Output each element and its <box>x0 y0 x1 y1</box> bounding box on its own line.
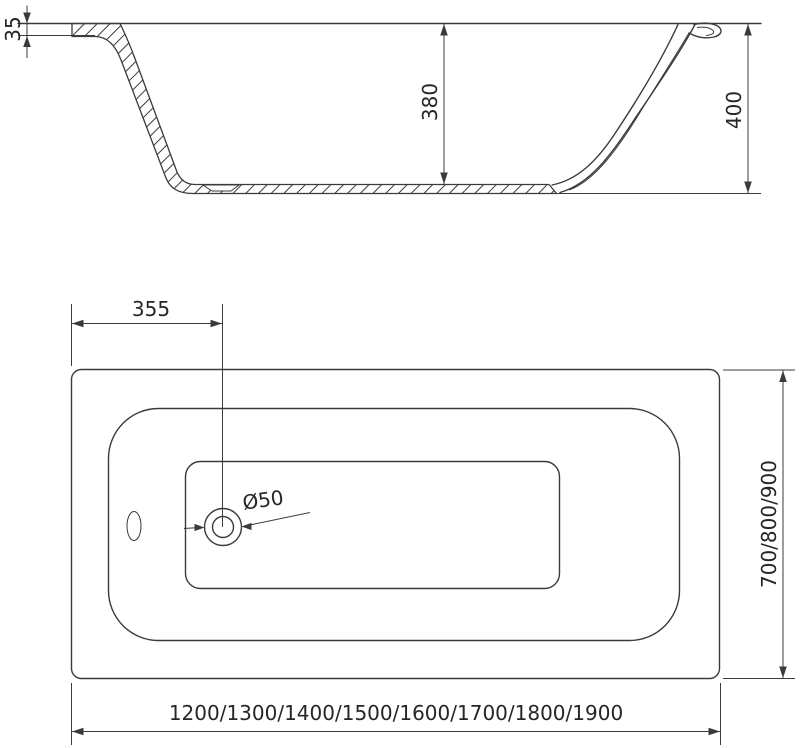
dim-rim-thickness: 35 <box>1 6 31 59</box>
dim-d50-tail <box>184 528 196 529</box>
dim-355-arrow-right <box>211 320 223 328</box>
dim-380-arrow-bottom <box>440 173 448 185</box>
dim-380-arrow-top <box>440 24 448 36</box>
tub-outer-edge <box>72 370 720 679</box>
dim-drain-diameter: Ø50 <box>184 485 310 531</box>
dim-length-label: 1200/1300/1400/1500/1600/1700/1800/1900 <box>169 701 623 725</box>
tub-rim-inner-edge <box>109 409 680 641</box>
dim-400-label: 400 <box>722 91 746 129</box>
drawing-canvas: 35 380 400 355 <box>0 0 800 748</box>
dim-35-label: 35 <box>1 16 25 41</box>
dim-length-options: 1200/1300/1400/1500/1600/1700/1800/1900 <box>72 683 721 745</box>
wall-cross-section <box>72 24 557 194</box>
dim-length-arrow-right <box>709 728 721 736</box>
back-rim-curl-inner <box>697 27 714 35</box>
dim-355-label: 355 <box>132 297 170 321</box>
dim-width-options: 700/800/900 <box>723 370 795 679</box>
overflow-hole <box>127 512 141 541</box>
back-wall-outer-line <box>560 25 695 193</box>
back-wall-inner-line <box>552 25 678 186</box>
dim-d50-label: Ø50 <box>241 485 285 515</box>
dim-width-label: 700/800/900 <box>757 460 781 588</box>
dim-total-height: 400 <box>722 24 752 194</box>
dim-400-arrow-bottom <box>744 182 752 194</box>
dim-length-arrow-left <box>72 728 84 736</box>
dim-380-label: 380 <box>418 83 442 121</box>
dim-d50-arrow-left <box>195 524 205 531</box>
dim-drain-offset: 355 <box>72 297 223 366</box>
dim-355-arrow-left <box>72 320 84 328</box>
dim-width-arrow-bottom <box>779 667 787 679</box>
bathtub-dimensions-drawing: 35 380 400 355 <box>0 0 800 748</box>
dim-d50-leader <box>246 513 310 526</box>
dim-width-arrow-top <box>779 371 787 383</box>
dim-400-arrow-top <box>744 24 752 36</box>
dim-d50-arrow-right <box>242 523 252 530</box>
plan-view: 355 Ø50 700/800/900 1200/1300/1400/1 <box>72 297 796 745</box>
back-wall-profile <box>552 23 721 192</box>
side-view: 35 380 400 <box>1 6 761 194</box>
dim-inner-depth: 380 <box>418 24 448 185</box>
